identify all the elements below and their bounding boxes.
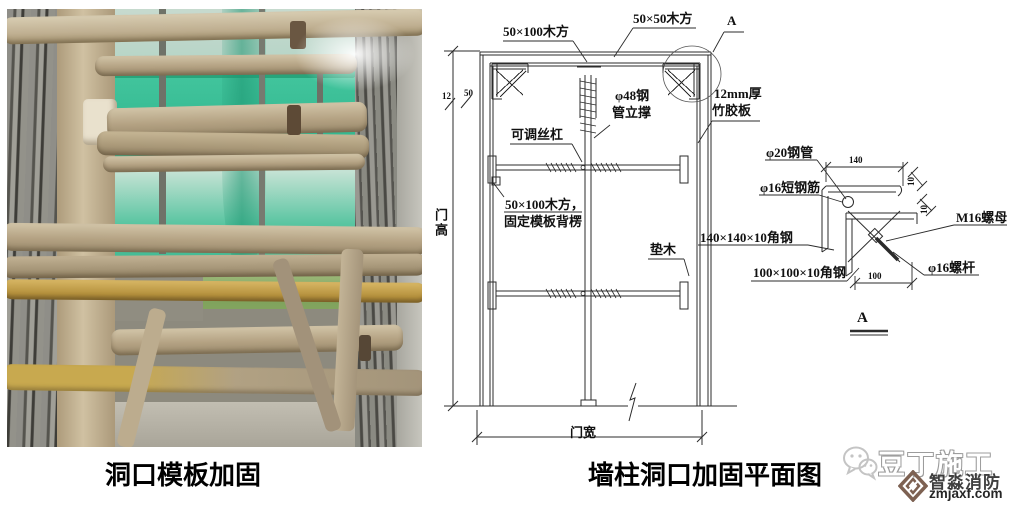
label-plywood-line1: 12mm厚 <box>714 87 762 102</box>
label-short-bar16: φ16短钢筋 <box>760 181 820 196</box>
dim-140: 140 <box>849 155 863 165</box>
dim-door-height: 门高 <box>432 208 447 238</box>
light-glare <box>295 17 415 91</box>
label-pipe48-line2: 管立撑 <box>612 106 651 121</box>
label-detail-mark-a: A <box>727 14 736 29</box>
pipe-clamp <box>287 105 301 135</box>
dim-12: 12 <box>442 91 451 101</box>
timber-log <box>103 154 365 173</box>
label-adjustable-screw: 可调丝杠 <box>511 128 563 143</box>
label-wood-50x50: 50×50木方 <box>633 12 692 27</box>
label-wood-50x100: 50×100木方 <box>503 25 569 40</box>
label-plywood-line2: 竹胶板 <box>712 104 751 119</box>
label-rod16: φ16螺杆 <box>928 261 975 276</box>
company-logo <box>898 470 928 502</box>
detail-a-linework <box>822 186 917 276</box>
label-pipe48-line1: φ48钢 <box>615 89 649 104</box>
screw-jack-hatches <box>546 81 621 298</box>
label-m16-nut: M16螺母 <box>956 211 1007 226</box>
diagram-caption: 墙柱洞口加固平面图 <box>588 455 822 492</box>
label-wood-fix-line1: 50×100木方， <box>505 198 584 213</box>
label-pad-wood: 垫木 <box>650 243 676 258</box>
dim-10-mid: 10 <box>919 205 929 214</box>
label-pipe20: φ20钢管 <box>766 146 813 161</box>
dim-50: 50 <box>464 88 473 98</box>
label-wood-fix-line2: 固定模板背楞 <box>504 215 582 230</box>
pipe-clamp <box>359 335 371 361</box>
frame-lines <box>444 51 737 445</box>
formwork-photo <box>7 9 422 447</box>
dim-100: 100 <box>868 271 882 281</box>
page: 50×100木方 50×50木方 A φ48钢 管立撑 可调丝杠 12mm厚 竹… <box>0 0 1018 505</box>
dim-door-width: 门宽 <box>570 426 596 441</box>
dim-10-top: 10 <box>906 177 916 186</box>
label-angle-100: 100×100×10角钢 <box>753 266 846 281</box>
photo-caption: 洞口模板加固 <box>105 455 261 492</box>
site-watermark: zmjaxf.com <box>929 486 1003 501</box>
label-angle-140: 140×140×10角钢 <box>700 231 793 246</box>
wechat-icon <box>841 443 879 481</box>
detail-a-title: A <box>857 310 868 327</box>
